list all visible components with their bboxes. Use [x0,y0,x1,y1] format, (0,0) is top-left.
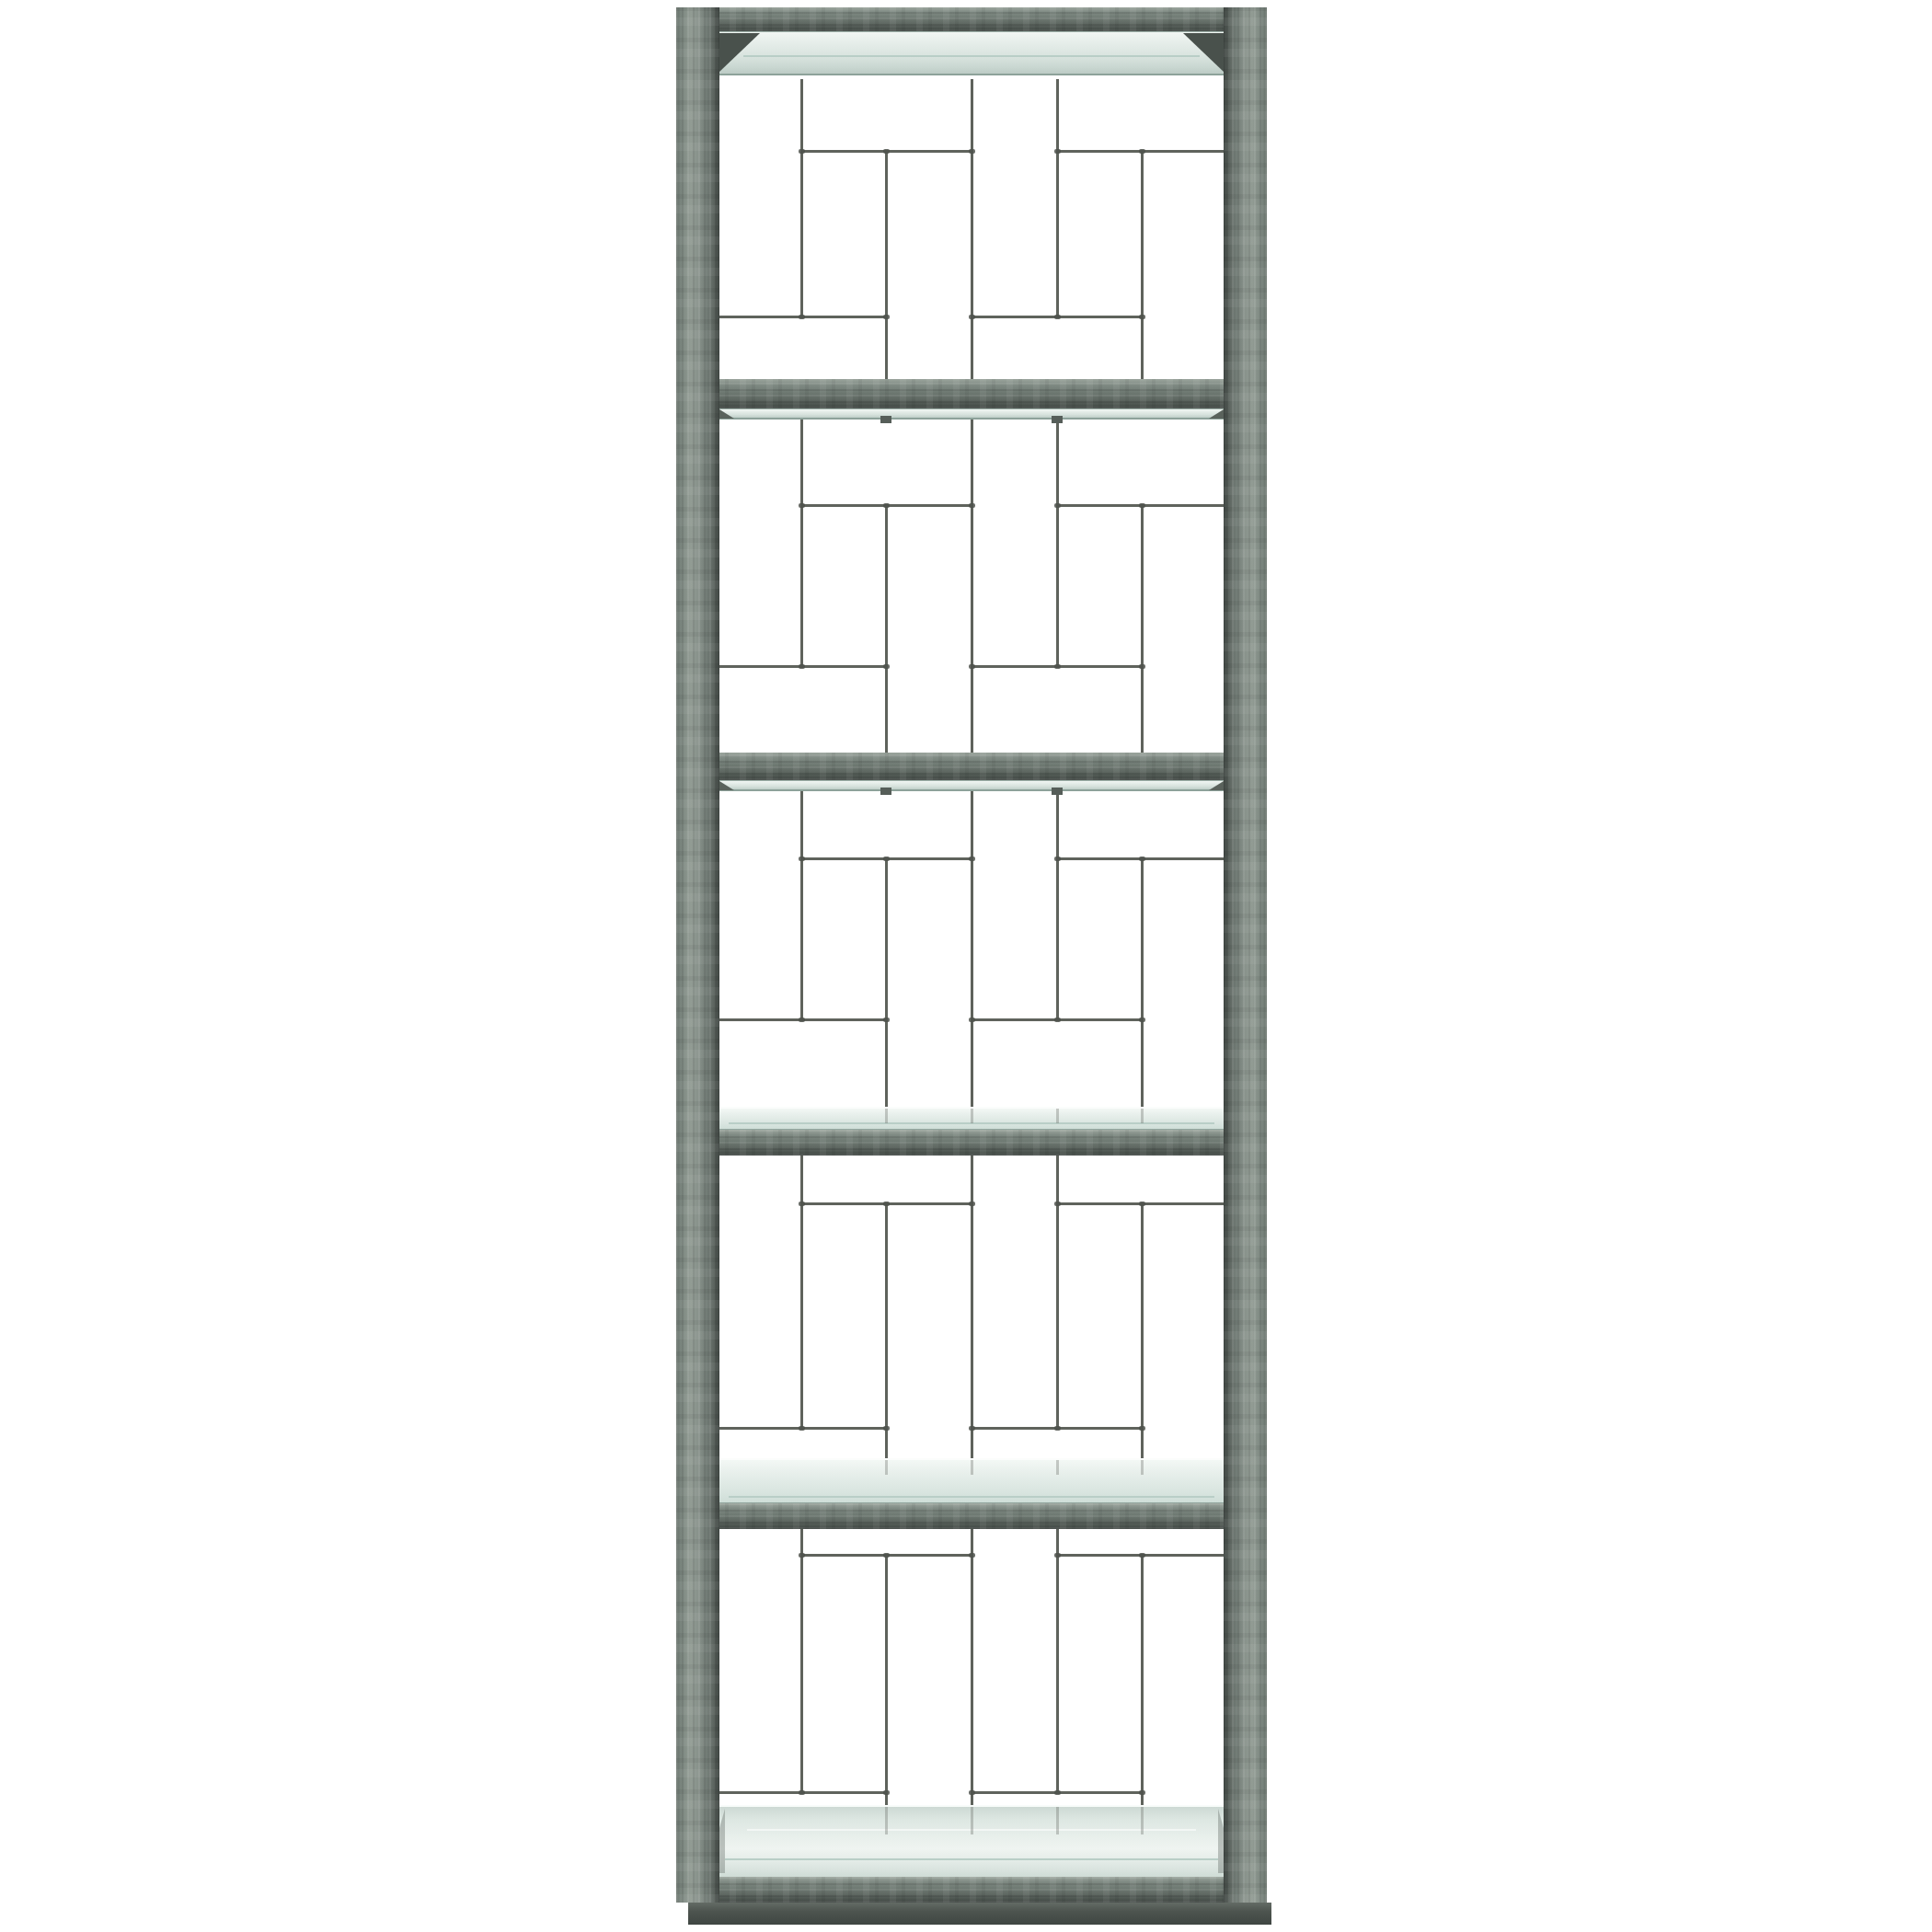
glass-shelf-top-bevel [743,55,1200,57]
base-rail [676,1877,1267,1903]
fretwork-bay-2-wire [800,420,803,666]
fretwork-bay-3-wire [800,791,803,1019]
solder-joint [1139,149,1145,154]
fretwork-reflection [885,1109,888,1123]
fretwork-bay-2-wire [1141,505,1144,753]
shelf-rail-4 [713,1130,1230,1156]
solder-joint [969,1202,975,1206]
fretwork-bay-3-wire [885,858,888,1107]
solder-joint [799,315,805,319]
glass-shelf-3 [719,780,1224,791]
solder-joint [969,149,975,154]
glass-clip-tab [880,788,891,795]
fretwork-reflection [971,1807,973,1834]
fretwork-bay-5-wire [885,1555,888,1805]
glass-clip-tab [1052,788,1063,795]
solder-joint [883,1202,890,1206]
solder-joint [799,1553,805,1558]
fretwork-reflection [1141,1807,1144,1834]
fretwork-reflection [1056,1460,1059,1475]
fretwork-reflection [885,1460,888,1475]
top-rail [676,7,1267,31]
solder-joint [883,1790,890,1795]
glass-shelf-top [719,31,1224,75]
fretwork-reflection [885,1807,888,1834]
solder-joint [1054,1018,1061,1022]
fretwork-reflection [1141,1460,1144,1475]
solder-joint [969,315,975,319]
fretwork-bay-5-wire [1141,1555,1144,1805]
solder-joint [883,664,890,669]
fretwork-bay-2-wire [1056,420,1059,666]
solder-joint [1054,1553,1061,1558]
solder-joint [883,1553,890,1558]
solder-joint [1054,664,1061,669]
solder-joint [883,503,890,508]
fretwork-bay-2-wire [971,420,973,753]
solder-joint [883,857,890,861]
solder-joint [1054,503,1061,508]
fretwork-bay-3-wire [971,791,973,1107]
solder-joint [1139,664,1145,669]
solder-joint [799,1426,805,1431]
fretwork-bay-5-wire [971,1529,973,1805]
solder-joint [799,1790,805,1795]
solder-joint [1139,1426,1145,1431]
fretwork-bay-3-wire [1056,791,1059,1019]
right-post [1224,7,1267,1903]
fretwork-bay-4-wire [1141,1203,1144,1458]
solder-joint [969,1018,975,1022]
solder-joint [1139,315,1145,319]
solder-joint [799,664,805,669]
fretwork-bay-5-wire [1056,1529,1059,1792]
shelf-rail-5 [713,1503,1230,1529]
solder-joint [799,1202,805,1206]
solder-joint [799,857,805,861]
shelf-rail-2 [713,379,1230,408]
glass-clip-tab [1052,416,1063,423]
fretwork-bay-1-wire [800,79,803,316]
solder-joint [969,664,975,669]
product-photo-etagere [0,0,1932,1932]
solder-joint [883,149,890,154]
fretwork-reflection [971,1460,973,1475]
fretwork-bay-4-wire [885,1203,888,1458]
solder-joint [1139,1018,1145,1022]
fretwork-reflection [971,1109,973,1123]
glass-shelf-bevel [729,1496,1214,1498]
solder-joint [1139,1202,1145,1206]
solder-joint [799,1018,805,1022]
solder-joint [1139,503,1145,508]
solder-joint [799,149,805,154]
fretwork-bay-1-wire [1056,79,1059,316]
solder-joint [1054,1790,1061,1795]
solder-joint [799,503,805,508]
glass-shelf-2 [719,408,1224,420]
fretwork-reflection [1056,1109,1059,1123]
fretwork-bay-4-wire [800,1156,803,1428]
solder-joint [1054,149,1061,154]
solder-joint [969,1553,975,1558]
fretwork-bay-1-wire [885,151,888,379]
plinth [688,1903,1271,1925]
fretwork-reflection [1141,1109,1144,1123]
solder-joint [969,503,975,508]
solder-joint [1139,1553,1145,1558]
shelf-rail-3 [713,753,1230,780]
left-post [676,7,719,1903]
fretwork-reflection [1056,1807,1059,1834]
solder-joint [883,1426,890,1431]
fretwork-bay-3-wire [1141,858,1144,1107]
fretwork-bay-2-wire [885,505,888,753]
fretwork-bay-1-wire [971,79,973,379]
solder-joint [969,1790,975,1795]
solder-joint [1139,857,1145,861]
solder-joint [883,1018,890,1022]
solder-joint [969,1426,975,1431]
fretwork-bay-4-wire [1056,1156,1059,1428]
fretwork-bay-5-wire [800,1529,803,1792]
solder-joint [1054,1426,1061,1431]
glass-shelf-bottom-bevel [725,1858,1218,1860]
fretwork-bay-1-wire [1141,151,1144,379]
solder-joint [883,315,890,319]
solder-joint [1054,857,1061,861]
solder-joint [1054,315,1061,319]
solder-joint [1054,1202,1061,1206]
solder-joint [1139,1790,1145,1795]
glass-clip-tab [880,416,891,423]
solder-joint [969,857,975,861]
